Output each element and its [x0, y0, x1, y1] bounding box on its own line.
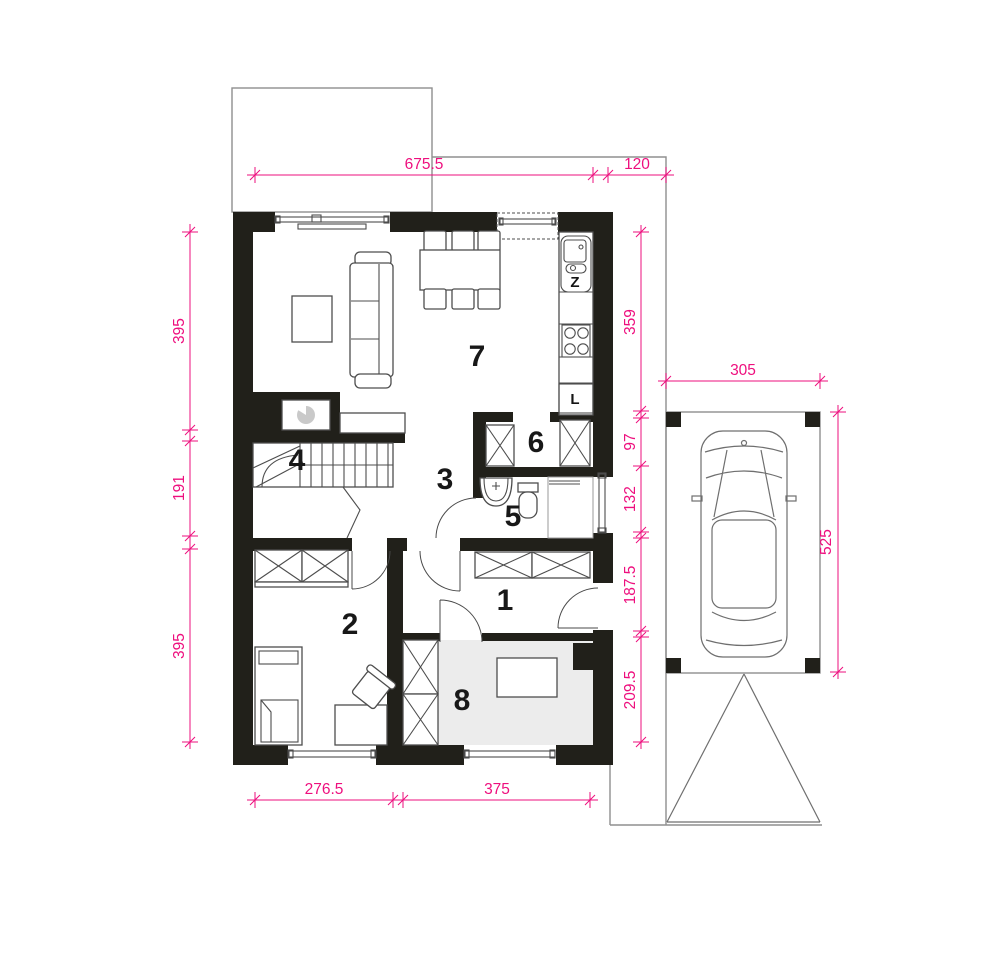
terrace-outline	[232, 88, 432, 212]
interior-wall	[486, 412, 513, 422]
chair	[452, 289, 474, 309]
svg-text:525: 525	[818, 529, 835, 555]
room8-door	[440, 600, 482, 642]
svg-text:191: 191	[171, 475, 188, 501]
carport	[666, 412, 820, 822]
room8-window	[464, 750, 555, 758]
svg-text:97: 97	[622, 433, 639, 450]
svg-text:305: 305	[730, 362, 756, 379]
room-label-6: 6	[528, 426, 545, 459]
stairs-break-line	[343, 487, 360, 538]
driveway-slope	[667, 674, 820, 822]
dimension-left-upper: 395	[171, 224, 198, 438]
svg-text:276.5: 276.5	[305, 781, 344, 798]
room-label-7: 7	[469, 340, 486, 373]
interior-wall	[387, 538, 407, 551]
chimney-block	[573, 643, 593, 670]
bathroom-window	[598, 473, 606, 533]
fireplace	[282, 400, 330, 430]
floor-plan-canvas: Z L	[0, 0, 1000, 969]
room2-window	[288, 750, 376, 758]
svg-text:675.5: 675.5	[405, 156, 444, 173]
interior-wall	[253, 538, 352, 551]
sofa	[350, 252, 393, 388]
svg-text:375: 375	[484, 781, 510, 798]
sink-label: Z	[570, 274, 579, 291]
carport-post	[805, 412, 820, 427]
exterior-wall-left	[233, 212, 253, 765]
dimension-right-kitchen: 359	[622, 225, 649, 418]
wardrobe	[403, 640, 438, 745]
interior-wall	[387, 551, 403, 765]
room-label-4: 4	[289, 444, 306, 477]
room-label-5: 5	[505, 500, 522, 533]
dining-table	[420, 250, 500, 290]
dimension-carport-depth: 525	[818, 405, 846, 679]
dimension-right-hall: 187.5	[622, 531, 649, 638]
exterior-wall-right	[593, 212, 613, 473]
dimension-right-bath: 132	[622, 459, 649, 539]
dimension-left-lower: 395	[171, 542, 198, 749]
utility-table	[497, 658, 557, 697]
kitchen-counter: Z L	[559, 232, 593, 415]
bathroom-fixtures	[480, 477, 593, 538]
chair	[424, 231, 446, 251]
exterior-wall-bottom	[233, 745, 288, 765]
carport-outline	[666, 412, 820, 673]
fridge-label: L	[570, 391, 579, 408]
wardrobe	[475, 552, 590, 578]
svg-text:395: 395	[171, 318, 188, 344]
room-label-8: 8	[454, 684, 471, 717]
dimension-carport-width: 305	[658, 362, 828, 389]
hall-door	[420, 551, 460, 591]
svg-text:359: 359	[622, 309, 639, 335]
floor-plan-page: Z L	[0, 0, 1000, 969]
room-label-3: 3	[437, 463, 454, 496]
entrance-door	[558, 588, 598, 628]
shower	[548, 477, 593, 538]
dimension-bottom-room8: 375	[395, 781, 598, 808]
dimension-bottom-room2: 276.5	[247, 781, 401, 808]
bed	[255, 647, 302, 745]
svg-text:209.5: 209.5	[622, 671, 639, 710]
exterior-wall-top	[390, 212, 497, 232]
chair	[478, 231, 500, 251]
desk	[335, 705, 387, 745]
interior-wall	[482, 633, 593, 641]
dimension-left-middle: 191	[171, 434, 198, 543]
carport-post	[666, 412, 681, 427]
interior-wall	[460, 538, 613, 551]
svg-text:395: 395	[171, 633, 188, 659]
room-label-1: 1	[497, 584, 514, 617]
kitchen-window	[497, 213, 558, 239]
exterior-wall-bottom	[556, 745, 613, 765]
stairs	[253, 443, 393, 538]
car	[692, 431, 796, 657]
svg-text:132: 132	[622, 486, 639, 512]
carport-post	[805, 658, 820, 673]
chair	[424, 289, 446, 309]
dimension-right-utility: 209.5	[622, 630, 649, 749]
dimension-top-width: 675.5	[247, 156, 601, 183]
chair	[452, 231, 474, 251]
chair	[478, 289, 500, 309]
bathroom-door	[436, 498, 476, 538]
wardrobe	[255, 550, 348, 587]
sideboard	[340, 413, 405, 433]
dining-set	[420, 231, 500, 309]
room-label-2: 2	[342, 608, 359, 641]
svg-text:187.5: 187.5	[622, 566, 639, 605]
dimension-top-offset: 120	[600, 156, 674, 183]
svg-text:120: 120	[624, 156, 650, 173]
sliding-door-window	[275, 215, 389, 229]
dimension-right-closet: 97	[622, 411, 649, 473]
carport-post	[666, 658, 681, 673]
room2-door	[352, 551, 390, 589]
exterior-wall-right	[593, 630, 613, 765]
interior-wall	[473, 467, 613, 477]
coffee-table	[292, 296, 332, 342]
